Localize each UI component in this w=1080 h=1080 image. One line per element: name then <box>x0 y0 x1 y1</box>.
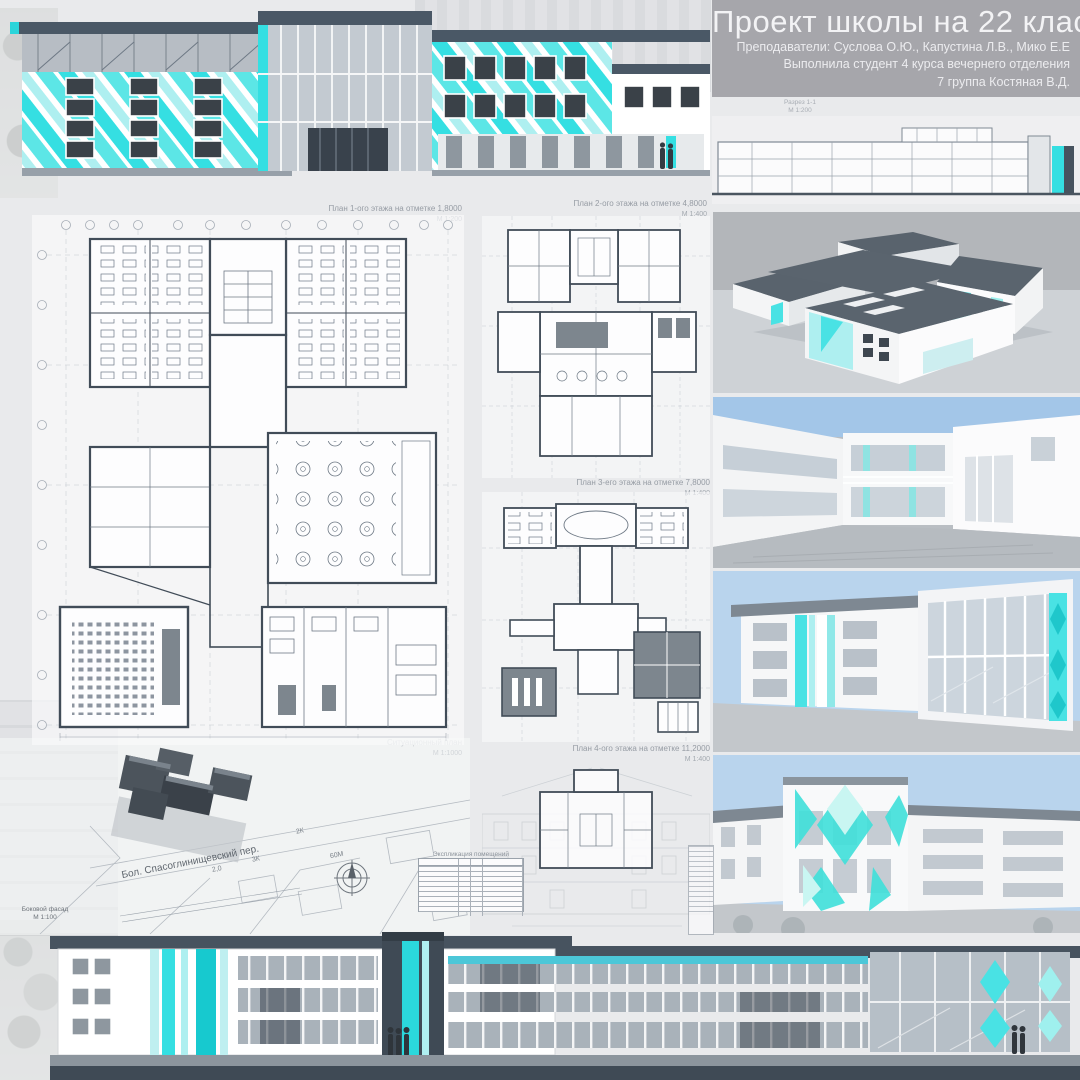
site-annotation-1: 2К <box>295 827 304 835</box>
site-annotation-2: 3К <box>251 855 260 863</box>
rooms-table: Экспликация помещений <box>418 851 524 912</box>
front-facade-elevation <box>8 8 710 200</box>
render-courtyard <box>713 397 1080 568</box>
section-label: Разрез 1-1 М 1:200 <box>760 99 840 116</box>
student-line-1: Выполнила студент 4 курса вечернего отде… <box>712 56 1070 74</box>
title-panel: Проект школы на 22 класса Преподаватели:… <box>712 0 1080 97</box>
rear-facade-elevation <box>50 930 1080 1080</box>
render-facade-diamond <box>713 755 1080 933</box>
presentation-board: Проект школы на 22 класса Преподаватели:… <box>0 0 1080 1080</box>
render-axonometric <box>713 212 1080 393</box>
floor-plan-1 <box>32 215 464 745</box>
section-drawing <box>712 116 1080 204</box>
underlay-table <box>688 845 714 935</box>
floor-plan-3 <box>482 492 710 742</box>
teachers-line: Преподаватели: Суслова О.Ю., Капустина Л… <box>712 39 1070 57</box>
rooms-table-title: Экспликация помещений <box>418 851 524 858</box>
project-title: Проект школы на 22 класса <box>712 6 1070 39</box>
render-facade-closeup <box>713 571 1080 752</box>
floor-plan-2 <box>482 216 710 478</box>
student-line-2: 7 группа Костяная В.Д. <box>712 74 1070 92</box>
side-facade-label: Боковой фасад М 1:100 <box>10 906 80 923</box>
